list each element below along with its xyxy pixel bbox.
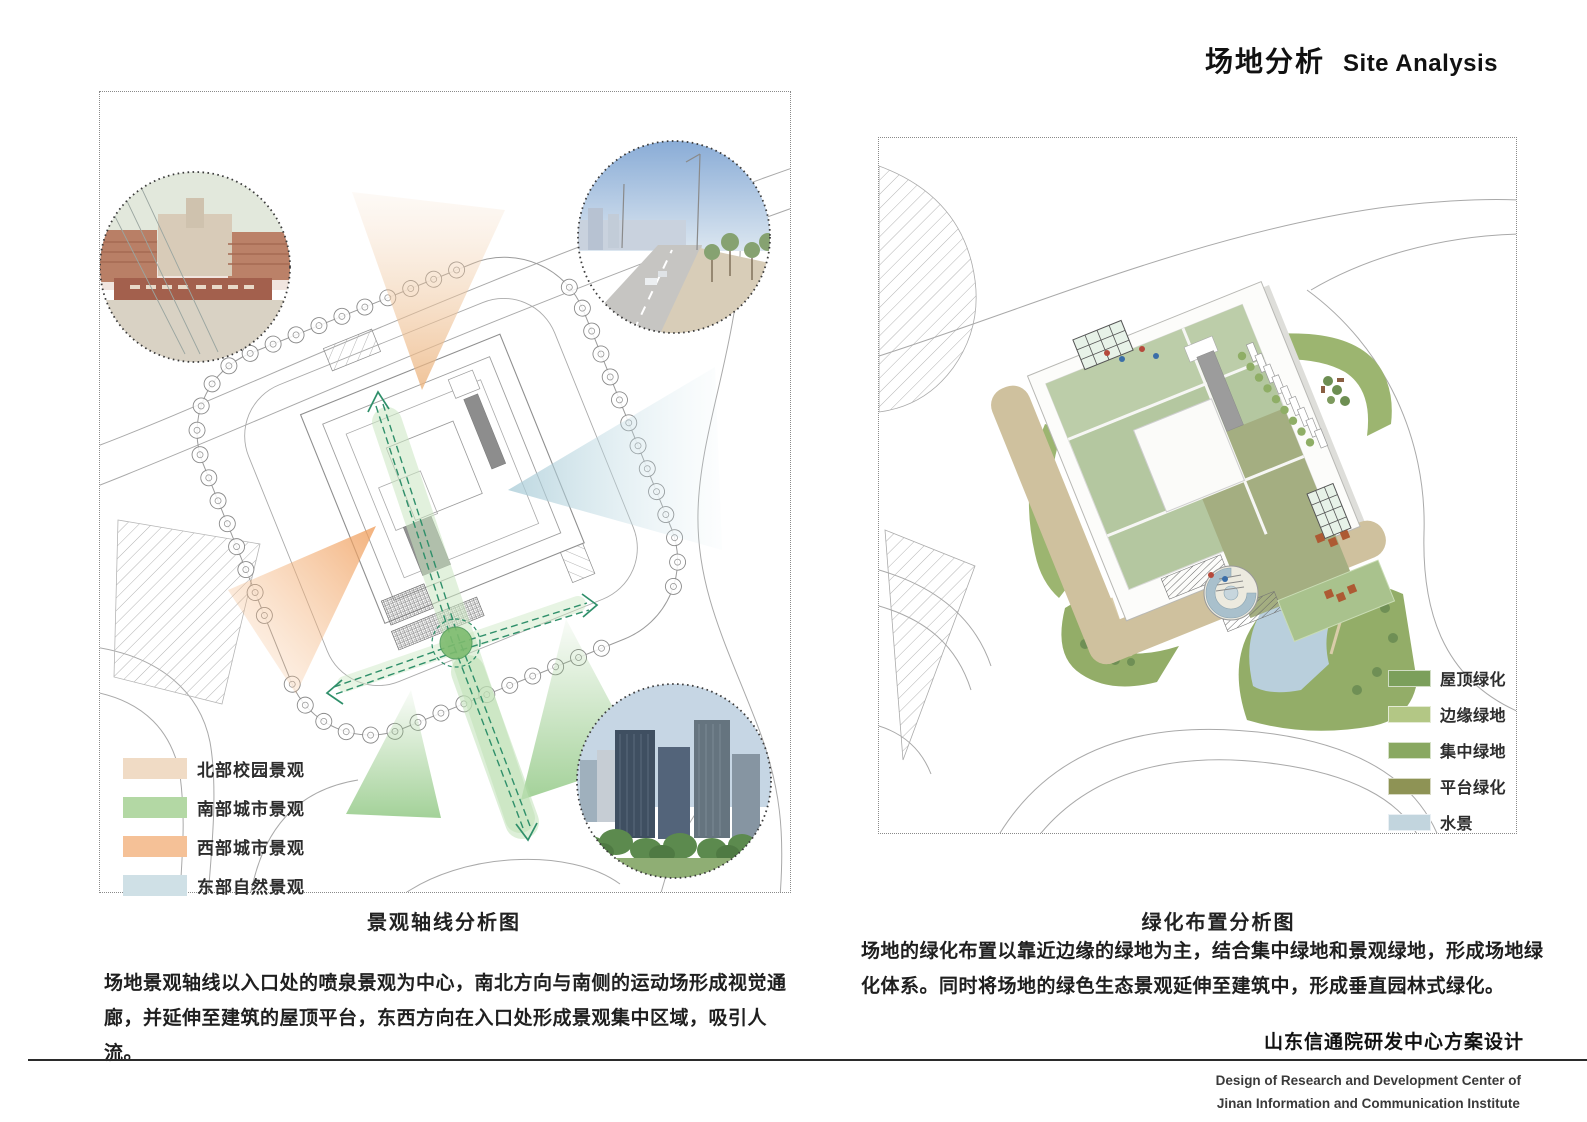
landscape-axis-panel: 北部校园景观南部城市景观西部城市景观东部自然景观 [99,91,791,893]
legend-item: 平台绿化 [1388,774,1506,798]
presentation-board: 场地分析 Site Analysis [0,0,1587,1122]
legend-item: 南部城市景观 [123,795,305,820]
page-title-en: Site Analysis [1343,50,1498,78]
fountain-node [440,627,472,659]
legend-item: 西部城市景观 [123,834,305,859]
right-description: 场地的绿化布置以靠近边缘的绿地为主，结合集中绿地和景观绿地，形成场地绿化体系。同… [861,934,1549,1004]
legend-item: 水景 [1388,810,1506,834]
greening-layout-panel: 屋顶绿化边缘绿地集中绿地平台绿化水景 [878,137,1517,834]
hatched-area [879,166,976,412]
legend-item: 东部自然景观 [123,873,305,898]
legend-item: 屋顶绿化 [1388,666,1506,690]
project-name-en-line2: Jinan Information and Communication Inst… [1216,1092,1521,1115]
legend-item: 边缘绿地 [1388,702,1506,726]
legend-label: 集中绿地 [1440,738,1506,762]
legend-label: 北部校园景观 [197,756,305,781]
legend-swatch [123,875,187,896]
legend-item: 集中绿地 [1388,738,1506,762]
project-name-en-line1: Design of Research and Development Cente… [1216,1069,1521,1092]
project-name-zh: 山东信通院研发中心方案设计 [1264,1027,1524,1054]
footer-divider [28,1059,1587,1061]
legend-swatch [1388,670,1431,687]
left-description: 场地景观轴线以入口处的喷泉景观为中心，南北方向与南侧的运动场形成视觉通廊，并延伸… [104,966,796,1071]
south-city-view-cone [346,690,441,818]
project-name-en: Design of Research and Development Cente… [1216,1069,1521,1115]
right-diagram-caption: 绿化布置分析图 [900,906,1537,935]
legend-label: 平台绿化 [1440,774,1506,798]
legend-swatch [1388,778,1431,795]
landscape-view-legend: 北部校园景观南部城市景观西部城市景观东部自然景观 [123,756,305,898]
greening-legend: 屋顶绿化边缘绿地集中绿地平台绿化水景 [1388,666,1506,834]
legend-swatch [1388,706,1431,723]
legend-swatch [1388,742,1431,759]
legend-label: 东部自然景观 [197,873,305,898]
legend-label: 边缘绿地 [1440,702,1506,726]
roof-garden [1321,376,1350,406]
page-title: 场地分析 Site Analysis [1205,40,1498,80]
page-title-zh: 场地分析 [1205,40,1325,80]
legend-swatch [123,836,187,857]
left-diagram-caption: 景观轴线分析图 [99,906,789,935]
legend-label: 南部城市景观 [197,795,305,820]
legend-swatch [123,758,187,779]
legend-swatch [123,797,187,818]
legend-label: 水景 [1440,810,1473,834]
hatched-area [885,530,975,760]
legend-label: 屋顶绿化 [1440,666,1506,690]
parking-hatch [323,329,380,371]
legend-swatch [1388,814,1431,831]
legend-item: 北部校园景观 [123,756,305,781]
legend-label: 西部城市景观 [197,834,305,859]
